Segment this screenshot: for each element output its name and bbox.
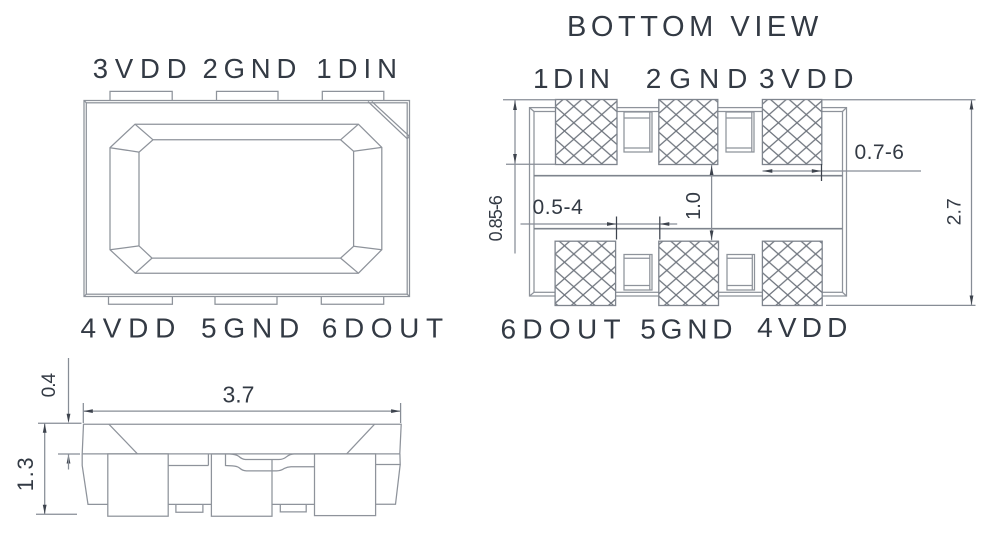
svg-text:2GND: 2GND [646,63,755,94]
svg-text:4VDD: 4VDD [757,312,853,343]
svg-text:2.7: 2.7 [943,198,965,225]
svg-text:6DOUT: 6DOUT [501,314,627,345]
svg-text:1DIN: 1DIN [533,63,614,94]
svg-text:6DOUT: 6DOUT [322,313,450,344]
svg-text:3.7: 3.7 [223,382,255,408]
svg-text:5GND: 5GND [640,314,737,345]
svg-text:0.85-6: 0.85-6 [486,195,506,241]
svg-text:3VDD: 3VDD [759,63,860,94]
svg-text:4VDD: 4VDD [81,313,183,344]
svg-text:0.5-4: 0.5-4 [533,196,584,219]
svg-text:1.3: 1.3 [13,456,38,491]
svg-text:0.7-6: 0.7-6 [855,141,905,164]
svg-text:BOTTOM VIEW: BOTTOM VIEW [567,11,823,43]
svg-text:5GND: 5GND [201,313,306,344]
svg-text:2GND: 2GND [203,53,303,84]
svg-text:1.0: 1.0 [683,192,705,220]
svg-text:3VDD: 3VDD [93,53,194,84]
svg-text:1DIN: 1DIN [316,53,403,84]
svg-text:0.4: 0.4 [39,372,60,397]
